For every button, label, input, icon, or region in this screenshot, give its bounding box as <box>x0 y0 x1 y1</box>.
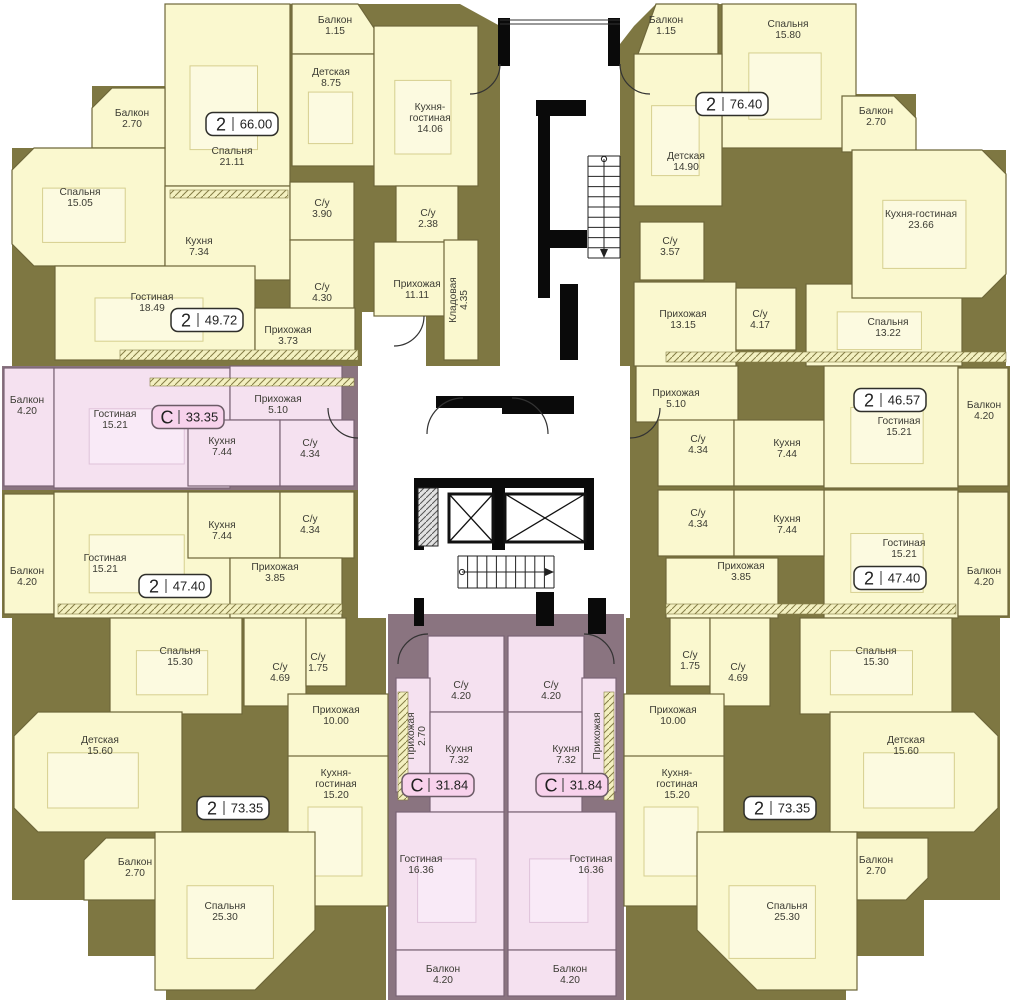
room: С/у4.69 <box>244 618 306 706</box>
furniture <box>190 66 258 150</box>
room-label: С/у1.75 <box>680 650 700 672</box>
room: Балкон4.20 <box>958 492 1008 616</box>
badge-rooms-count: 2 <box>754 799 764 819</box>
apartment-badge[interactable]: C31.84 <box>536 774 608 797</box>
badge-rooms-count: 2 <box>706 95 716 115</box>
apartment-badge[interactable]: 247.40 <box>854 567 926 590</box>
room: Спальня15.30 <box>800 618 952 714</box>
badge-area-value: 47.40 <box>173 579 206 594</box>
room: Кухня7.44 <box>734 420 824 486</box>
core-wall <box>536 100 586 116</box>
room: Детская8.75 <box>292 54 374 166</box>
room-label: С/у4.34 <box>688 434 708 456</box>
room: С/у1.75 <box>306 618 346 686</box>
room: Прихожая5.10 <box>636 366 738 422</box>
furniture <box>644 807 698 876</box>
core-wall <box>560 284 578 360</box>
room: Гостиная16.36 <box>508 812 616 950</box>
room: Детская14.90 <box>634 54 722 206</box>
room-label: Кухня7.32 <box>552 744 579 766</box>
elevator-shaft <box>505 494 585 542</box>
room: Балкон4.20 <box>4 368 54 486</box>
room-label: С/у4.30 <box>312 282 332 304</box>
room: Кухня7.44 <box>188 420 280 486</box>
core-wall <box>588 598 606 634</box>
apartment-badge[interactable]: 249.72 <box>171 309 243 332</box>
room-area <box>958 368 1008 486</box>
stairs-direction-arrow <box>600 249 608 258</box>
apartment-badge[interactable]: 246.57 <box>854 389 926 412</box>
room: Детская15.60 <box>830 712 998 832</box>
badge-rooms-count: C <box>411 776 424 796</box>
staircase <box>588 156 620 258</box>
core-wall <box>608 18 620 66</box>
room-label: С/у4.20 <box>451 680 471 702</box>
furniture <box>308 92 352 144</box>
room-label: С/у4.69 <box>728 662 748 684</box>
core-wall <box>538 116 550 298</box>
badge-rooms-count: C <box>545 776 558 796</box>
building-floor-plan: Спальня21.11Балкон1.15Детская8.75Кухня-г… <box>0 0 1012 1000</box>
room: Гостиная15.21 <box>824 366 958 488</box>
room: С/у4.34 <box>280 492 354 558</box>
wardrobe-hatch <box>58 604 342 614</box>
room: Прихожая5.10 <box>230 366 342 420</box>
wardrobe-hatch <box>120 350 358 360</box>
room: Спальня15.05 <box>12 148 165 266</box>
room-label: С/у3.57 <box>660 236 680 258</box>
room-label: Кухня7.44 <box>208 520 235 542</box>
room-label: С/у4.69 <box>270 662 290 684</box>
room-label: Кухня7.44 <box>773 438 800 460</box>
room: С/у3.90 <box>290 182 354 240</box>
badge-area-value: 33.35 <box>186 410 219 425</box>
badge-area-value: 47.40 <box>888 571 921 586</box>
floor-plan-page: Спальня21.11Балкон1.15Детская8.75Кухня-г… <box>0 0 1012 1000</box>
furniture <box>864 753 955 808</box>
badge-area-value: 31.84 <box>570 778 603 793</box>
room: Спальня21.11 <box>165 4 290 186</box>
room-area <box>4 494 54 614</box>
room: С/у4.34 <box>658 490 734 556</box>
staircase <box>458 556 554 588</box>
room: Кухня7.44 <box>734 490 824 556</box>
room-area <box>188 420 280 486</box>
room: Спальня15.30 <box>110 618 242 714</box>
room: С/у4.20 <box>508 636 584 712</box>
room: Кухня7.44 <box>188 492 280 558</box>
badge-rooms-count: 2 <box>207 799 217 819</box>
vent-shaft <box>418 488 438 546</box>
room-label: Кухня7.32 <box>445 744 472 766</box>
badge-area-value: 76.40 <box>730 97 763 112</box>
badge-area-value: 49.72 <box>205 313 238 328</box>
room: Балкон2.70 <box>92 88 165 148</box>
furniture <box>48 753 139 808</box>
badge-area-value: 46.57 <box>888 393 921 408</box>
core-wall <box>536 592 554 626</box>
badge-rooms-count: 2 <box>864 391 874 411</box>
room: Детская15.60 <box>14 712 182 832</box>
badge-rooms-count: 2 <box>864 569 874 589</box>
badge-area-value: 73.35 <box>778 801 811 816</box>
room: С/у1.75 <box>670 618 710 686</box>
room: С/у4.17 <box>736 288 796 350</box>
apartment-badge[interactable]: C31.84 <box>402 774 474 797</box>
stairs-direction-arrow <box>545 568 554 576</box>
room: Балкон4.20 <box>396 950 504 996</box>
room-area <box>958 492 1008 616</box>
badge-rooms-count: 2 <box>181 311 191 331</box>
room: Балкон4.20 <box>958 368 1008 486</box>
room-label: С/у2.38 <box>418 208 438 230</box>
room-label: Кухня7.44 <box>208 436 235 458</box>
room-label: Кухня7.34 <box>185 236 212 258</box>
room: С/у2.38 <box>396 186 458 242</box>
apartment-badge[interactable]: 273.35 <box>197 797 269 820</box>
room-label: С/у4.34 <box>688 508 708 530</box>
room: Гостиная15.21 <box>824 490 958 618</box>
core-wall <box>414 598 424 626</box>
room: С/у4.30 <box>290 240 354 310</box>
apartment-badge[interactable]: 247.40 <box>139 575 211 598</box>
room: Гостиная16.36 <box>396 812 504 950</box>
wardrobe-hatch <box>666 352 1006 362</box>
room-label: С/у4.34 <box>300 514 320 536</box>
core-wall <box>498 18 510 66</box>
room-label: С/у4.34 <box>300 438 320 460</box>
corridor-recess <box>362 312 426 366</box>
room: Балкон4.20 <box>508 950 616 996</box>
core-wall <box>545 230 587 248</box>
apartment-badge[interactable]: C33.35 <box>152 406 224 429</box>
room: Балкон1.15 <box>292 4 374 54</box>
room: С/у4.34 <box>658 420 734 486</box>
room: С/у3.57 <box>640 222 704 280</box>
room-label: С/у4.20 <box>541 680 561 702</box>
room-label: С/у1.75 <box>308 652 328 674</box>
room-label: С/у4.17 <box>750 309 770 331</box>
room: Кухня-гостиная23.66 <box>852 150 1006 298</box>
room: Балкон4.20 <box>4 494 54 614</box>
badge-area-value: 31.84 <box>436 778 469 793</box>
apartment-badge[interactable]: 273.35 <box>744 797 816 820</box>
apartment-badge[interactable]: 266.00 <box>206 113 278 136</box>
wardrobe-hatch <box>666 604 956 614</box>
badge-rooms-count: 2 <box>149 577 159 597</box>
badge-area-value: 66.00 <box>240 117 273 132</box>
furniture <box>308 807 362 876</box>
apartment-badge[interactable]: 276.40 <box>696 93 768 116</box>
room-label: Кухня7.44 <box>773 514 800 536</box>
badge-rooms-count: C <box>161 408 174 428</box>
room: Кладовая4.35 <box>444 240 478 360</box>
room: С/у4.69 <box>710 618 770 706</box>
badge-rooms-count: 2 <box>216 115 226 135</box>
furniture <box>729 886 815 959</box>
room: Кухня-гостиная14.06 <box>374 26 478 186</box>
elevator-shaft <box>449 494 493 542</box>
room-area <box>4 368 54 486</box>
room-label: С/у3.90 <box>312 198 332 220</box>
room: Спальня15.80 <box>722 4 856 148</box>
room: С/у4.20 <box>428 636 504 712</box>
wardrobe-hatch <box>150 378 354 386</box>
core-wall <box>502 396 574 414</box>
badge-area-value: 73.35 <box>231 801 264 816</box>
wardrobe-hatch <box>170 190 288 198</box>
room: С/у4.34 <box>280 420 354 486</box>
layer-whites <box>362 312 426 366</box>
